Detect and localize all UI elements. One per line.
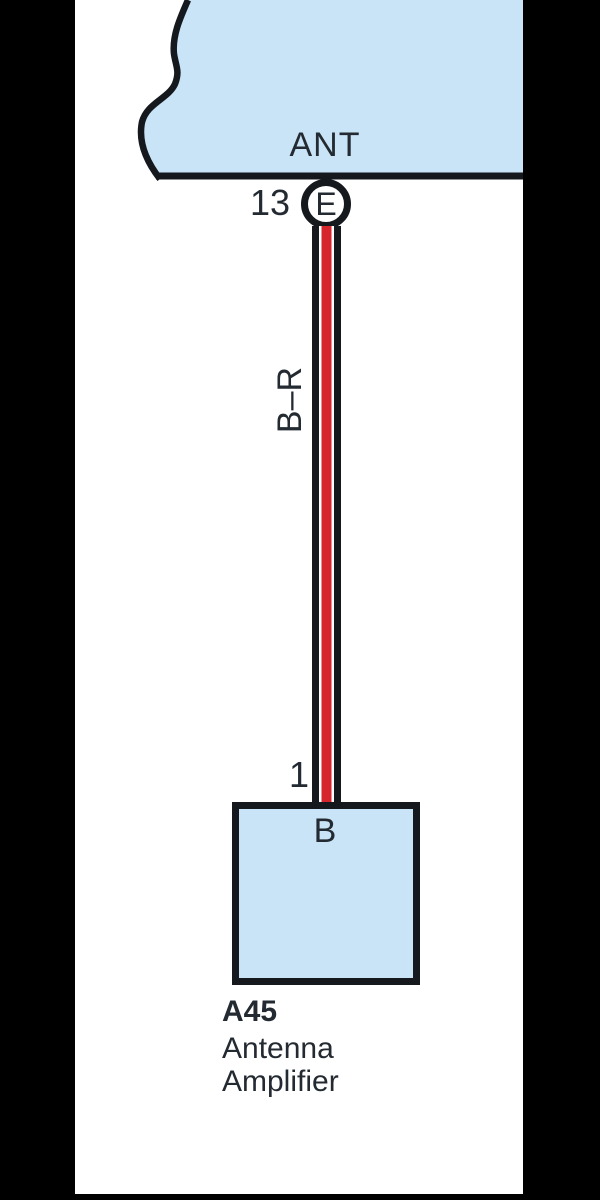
amplifier-id: A45 <box>222 996 277 1028</box>
amplifier-terminal-label: B <box>285 814 365 850</box>
diagram-shapes <box>0 0 600 1200</box>
wire-color-code-label: B–R <box>273 367 309 433</box>
amplifier-pin-number: 1 <box>209 756 309 794</box>
wiring-diagram: ANT 13 E B–R 1 B A45 Antenna Amplifier <box>0 0 600 1200</box>
wire-b-r <box>312 226 341 809</box>
right-black-mask <box>523 0 600 1200</box>
left-black-mask <box>0 0 75 1200</box>
amplifier-name: Antenna Amplifier <box>222 1032 370 1098</box>
top-component-label: ANT <box>245 128 405 164</box>
connector-pin-number: 13 <box>190 184 290 222</box>
bottom-black-mask <box>0 1194 600 1200</box>
connector-code: E <box>306 188 346 222</box>
